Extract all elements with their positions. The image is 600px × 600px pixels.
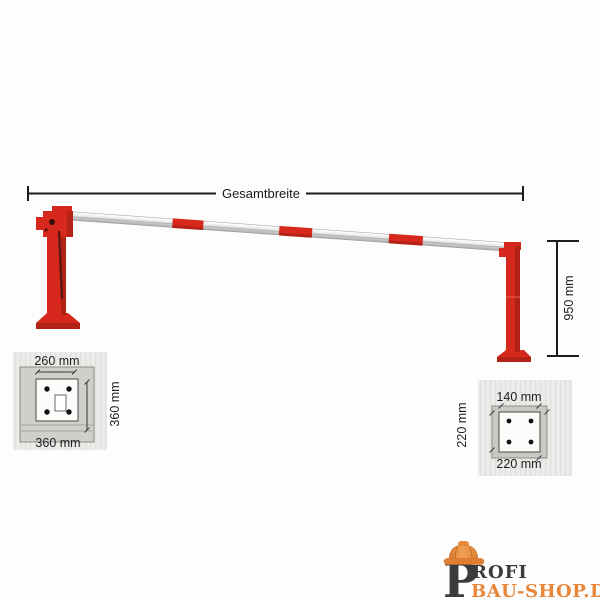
left-baseplate-bottom-width-label: 360 mm [35, 436, 80, 450]
logo-domain: BAU-SHOP.DE [471, 581, 600, 600]
brand-logo: P ROFI BAU-SHOP.DE [443, 541, 600, 600]
bolt-hole-icon [44, 386, 49, 391]
barrier-technical-drawing: Gesamtbreite [0, 0, 600, 600]
product-diagram: Gesamtbreite [0, 0, 600, 600]
barrier-boom [60, 210, 512, 252]
right-post-joint-line [506, 296, 520, 298]
bolt-hole-icon [66, 386, 71, 391]
right-baseplate-side-height-label: 220 mm [455, 402, 469, 447]
head-bolt-icon [45, 229, 48, 232]
right-post-column-shade [515, 246, 520, 352]
bolt-hole-icon [66, 409, 71, 414]
right-baseplate-top-width-label: 140 mm [496, 390, 541, 404]
right-post-catch-nose [499, 248, 506, 257]
right-post-baseplate-edge [497, 357, 531, 362]
height-dimension-label: 950 mm [562, 275, 576, 320]
left-post [36, 206, 80, 329]
width-dimension-label: Gesamtbreite [222, 186, 300, 201]
right-post-baseplate [497, 350, 531, 357]
right-diagram-plate [499, 412, 540, 452]
left-baseplate-top-width-label: 260 mm [34, 354, 79, 368]
bolt-hole-icon [44, 409, 49, 414]
left-post-baseplate [36, 313, 80, 323]
right-baseplate-bottom-width-label: 220 mm [496, 457, 541, 471]
left-baseplate-diagram: 260 mm 360 mm 360 mm [13, 352, 122, 450]
right-baseplate-diagram: 140 mm 220 mm 220 mm [455, 380, 572, 476]
left-post-baseplate-edge [36, 323, 80, 329]
hardhat-icon [444, 541, 484, 565]
bolt-hole-icon [507, 419, 512, 424]
pivot-bolt-icon [49, 219, 55, 225]
left-baseplate-side-height-label: 360 mm [108, 381, 122, 426]
bolt-hole-icon [529, 419, 534, 424]
logo-name: ROFI [472, 562, 528, 583]
bolt-hole-icon [529, 440, 534, 445]
left-post-head-shade [67, 211, 73, 237]
bolt-hole-icon [507, 440, 512, 445]
left-diagram-center-cutout [55, 395, 66, 411]
right-post [497, 242, 531, 362]
left-post-head-nose [36, 217, 44, 230]
